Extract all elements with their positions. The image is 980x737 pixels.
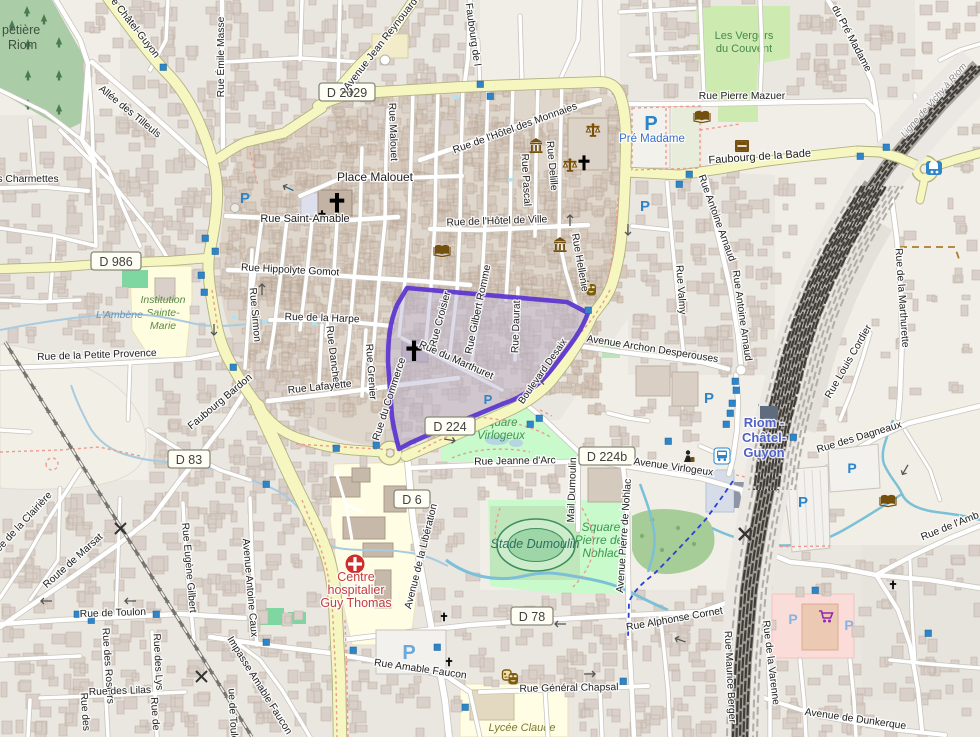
svg-text:Place Malouet: Place Malouet (337, 170, 414, 184)
svg-text:Rue Daurat: Rue Daurat (510, 300, 523, 353)
svg-text:P: P (240, 190, 250, 207)
svg-text:Rue Malouet: Rue Malouet (386, 103, 399, 162)
svg-text:Stade Dumoulin: Stade Dumoulin (491, 537, 580, 551)
svg-text:D 224: D 224 (433, 420, 466, 434)
svg-text:Pré Madame: Pré Madame (619, 133, 685, 145)
svg-text:Rue Émile Masse: Rue Émile Masse (214, 16, 227, 97)
svg-text:Mail Dumoulin: Mail Dumoulin (566, 457, 579, 523)
svg-text:Rue Saint-Amable: Rue Saint-Amable (260, 213, 349, 225)
svg-text:P: P (484, 392, 493, 407)
svg-text:P: P (798, 494, 808, 511)
svg-text:Rue de: Rue de (148, 697, 161, 731)
svg-text:Rue Jeanne d'Arc: Rue Jeanne d'Arc (474, 455, 556, 467)
svg-text:Rue Général Chapsal: Rue Général Chapsal (519, 682, 618, 695)
svg-text:D 6: D 6 (402, 493, 422, 507)
svg-text:Rue de Toulon: Rue de Toulon (80, 607, 147, 620)
svg-text:P: P (704, 390, 714, 407)
svg-text:Virlogeux: Virlogeux (477, 430, 526, 442)
svg-text:Rue des Lilas: Rue des Lilas (89, 685, 152, 698)
svg-text:Pierre de: Pierre de (575, 533, 624, 547)
svg-text:Centre: Centre (337, 570, 375, 584)
svg-text:D 224b: D 224b (587, 450, 627, 464)
svg-text:Riom -: Riom - (744, 415, 784, 430)
svg-text:P: P (640, 198, 650, 215)
svg-text:Institution: Institution (141, 294, 186, 306)
svg-text:Marie: Marie (150, 320, 176, 332)
svg-text:P: P (847, 460, 856, 476)
svg-text:P: P (788, 611, 797, 627)
svg-text:P: P (402, 642, 415, 664)
svg-text:P: P (644, 113, 657, 135)
svg-text:Nohlac: Nohlac (582, 546, 619, 560)
svg-text:hospitalier: hospitalier (328, 583, 385, 597)
svg-text:Les Vergers: Les Vergers (715, 30, 774, 42)
svg-text:Riom: Riom (8, 38, 37, 52)
svg-text:Rue Pierre Mazuer: Rue Pierre Mazuer (699, 91, 786, 102)
svg-text:Châtel-: Châtel- (742, 430, 786, 445)
svg-text:petière: petière (2, 23, 40, 37)
svg-text:P: P (844, 617, 853, 633)
svg-text:Guyon: Guyon (743, 445, 784, 460)
svg-text:Square: Square (582, 520, 621, 534)
svg-text:Guy Thomas: Guy Thomas (320, 596, 391, 610)
svg-text:L'Ambène: L'Ambène (96, 309, 143, 321)
svg-text:s Charmettes: s Charmettes (0, 174, 59, 185)
svg-text:D 78: D 78 (519, 610, 545, 624)
svg-text:D 986: D 986 (99, 255, 132, 269)
svg-text:D 83: D 83 (176, 453, 202, 467)
